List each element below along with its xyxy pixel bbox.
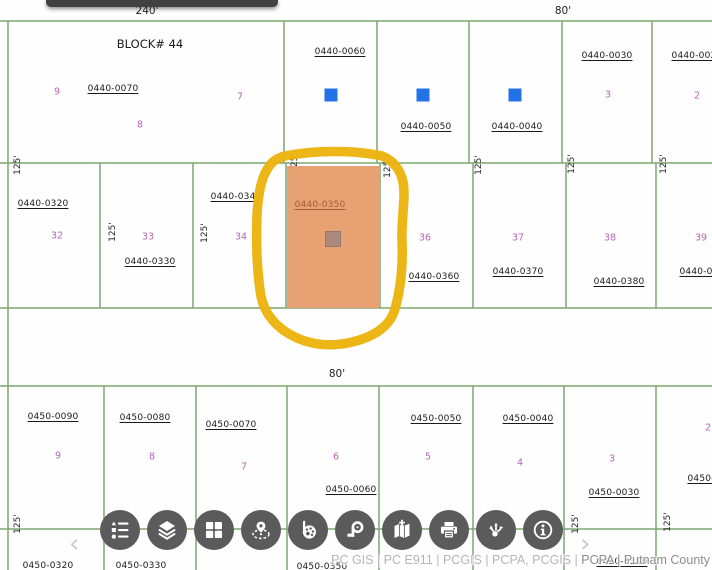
basemap-button[interactable]: [194, 510, 234, 550]
lot-number-label: 39: [695, 233, 707, 244]
lot-number-label: 8: [149, 452, 155, 463]
lot-number-label: 3: [605, 90, 611, 101]
lot-number-label: 9: [55, 451, 61, 462]
top-scrollbar[interactable]: [46, 0, 278, 7]
parcel-id-label: 0440-0030: [582, 51, 633, 61]
toolbar-prev-chevron[interactable]: ‹: [69, 531, 79, 557]
parcel-id-label: 0440-0060: [315, 47, 366, 57]
draw-button[interactable]: [288, 510, 328, 550]
map-attribution: PC GIS | PC E911 | PCGIS | PCPA, PCGIS |…: [331, 553, 710, 567]
parcel-id-label: 0450-0050: [411, 414, 462, 424]
lot-number-label: 6: [333, 452, 339, 463]
lot-number-label: 4: [517, 458, 523, 469]
block-label: BLOCK# 44: [117, 37, 183, 51]
toolbar-next-chevron[interactable]: ›: [580, 531, 590, 557]
frontage-tick-label: 125': [474, 155, 484, 175]
lot-number-label: 33: [142, 232, 154, 243]
parcel-id-label: 0450-0090: [28, 412, 79, 422]
location-pin-icon: [250, 519, 272, 541]
parcel-id-label: 0450-0060: [326, 485, 377, 495]
layers-icon: [156, 519, 178, 541]
parcel-id-label: 0440-0050: [401, 122, 452, 132]
parcel-id-label: 0440-0370: [493, 267, 544, 277]
parcel-id-label: 0450-0330: [116, 561, 167, 570]
parcel-id-label: 0440-0380: [594, 277, 645, 287]
parcel-id-label: 0440-0340: [211, 192, 262, 202]
lot-number-label: 5: [425, 452, 431, 463]
parcel-id-label: 0440-0320: [18, 199, 69, 209]
structure-point-marker: [325, 89, 338, 102]
attribution-county: PCPA | Putnam County: [581, 553, 710, 567]
lot-number-label: 7: [241, 462, 247, 473]
lot-number-label: 38: [604, 233, 616, 244]
share-icon: [485, 519, 507, 541]
parcel-id-label: 0440-03: [679, 267, 712, 277]
location-button[interactable]: [241, 510, 281, 550]
layers-button[interactable]: [147, 510, 187, 550]
frontage-tick-label: 125': [108, 222, 118, 242]
measure-button[interactable]: [335, 510, 375, 550]
structure-point-marker: [417, 89, 430, 102]
print-icon: [438, 519, 460, 541]
parcel-id-label: 0450-0320: [23, 561, 74, 570]
parcel-id-label: 0440-0360: [409, 272, 460, 282]
parcel-id-label: 0450-0040: [503, 414, 554, 424]
frontage-tick-label: 125': [13, 514, 23, 534]
selected-parcel-id-label: 0440-0350: [295, 200, 346, 210]
lot-number-label: 8: [137, 120, 143, 131]
print-button[interactable]: [429, 510, 469, 550]
lot-number-label: 9: [54, 87, 60, 98]
frontage-tick-label: 125': [663, 512, 673, 532]
parcel-id-label: 0440-0040: [492, 122, 543, 132]
parcel-id-label: 0450-0070: [206, 420, 257, 430]
map-annotations: 0440-00700440-00600440-00500440-00400440…: [0, 0, 712, 570]
legend-button[interactable]: [100, 510, 140, 550]
lot-number-label: 3: [609, 454, 615, 465]
parcel-id-label: 0440-0070: [88, 84, 139, 94]
frontage-tick-label: 125': [659, 154, 669, 174]
add-map-button[interactable]: [382, 510, 422, 550]
parcel-id-label: 0440-0330: [125, 257, 176, 267]
attribution-sources: PC GIS | PC E911 | PCGIS | PCPA, PCGIS |: [331, 553, 581, 567]
basemap-grid-icon: [203, 519, 225, 541]
frontage-tick-label: 125': [567, 154, 577, 174]
lot-number-label: 37: [512, 233, 524, 244]
lot-number-label: 36: [419, 233, 431, 244]
map-add-icon: [391, 519, 413, 541]
parcel-id-label: 0450-0: [687, 474, 712, 484]
dimension-label: 80': [329, 368, 345, 380]
lot-number-label: 7: [237, 92, 243, 103]
selected-parcel-highlight[interactable]: 0440-0350: [287, 166, 379, 308]
map-viewport[interactable]: 0440-00700440-00600440-00500440-00400440…: [0, 0, 712, 570]
parcel-id-label: 0440-002: [672, 51, 712, 61]
selected-parcel-structure-square: [325, 231, 341, 247]
draw-palette-icon: [297, 519, 319, 541]
frontage-tick-label: 125': [13, 155, 23, 175]
dimension-label: 80': [555, 5, 571, 17]
frontage-tick-label: 125': [200, 223, 210, 243]
toolbar-buttons: [100, 510, 563, 550]
info-icon: [532, 519, 554, 541]
lot-number-label: 32: [51, 231, 63, 242]
parcel-id-label: 0450-0080: [120, 413, 171, 423]
lot-number-label: 34: [235, 232, 247, 243]
share-button[interactable]: [476, 510, 516, 550]
lot-number-label: 2: [705, 423, 711, 434]
info-button[interactable]: [523, 510, 563, 550]
lot-number-label: 2: [694, 91, 700, 102]
measure-tape-icon: [344, 519, 366, 541]
frontage-tick-label: 125': [383, 158, 393, 178]
parcel-id-label: 0450-0030: [589, 488, 640, 498]
structure-point-marker: [509, 89, 522, 102]
legend-icon: [109, 519, 131, 541]
